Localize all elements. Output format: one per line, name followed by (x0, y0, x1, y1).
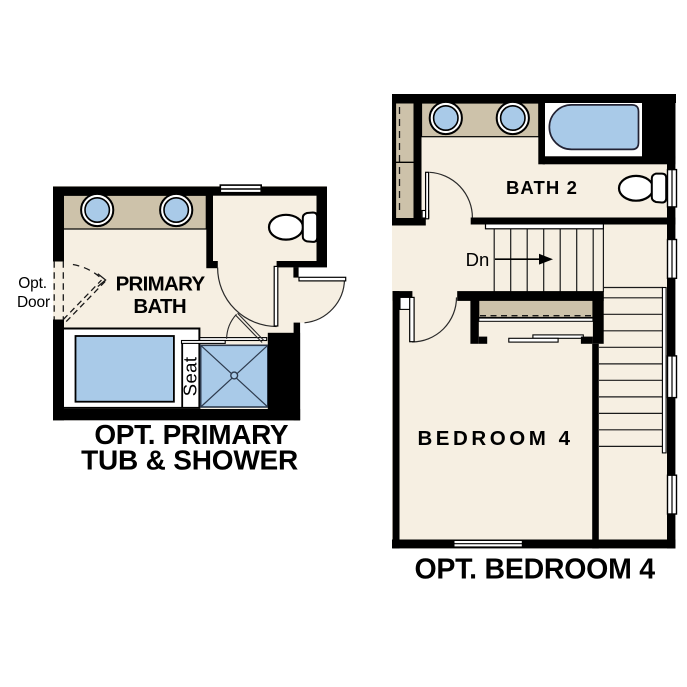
svg-text:BATH 2: BATH 2 (506, 177, 578, 198)
svg-text:Door: Door (17, 294, 50, 311)
svg-text:Seat: Seat (179, 357, 200, 397)
svg-text:TUB & SHOWER: TUB & SHOWER (81, 445, 298, 476)
svg-text:PRIMARY: PRIMARY (116, 273, 206, 296)
svg-text:BATH: BATH (133, 295, 186, 318)
svg-text:OPT. BEDROOM 4: OPT. BEDROOM 4 (415, 553, 656, 585)
svg-text:Dn: Dn (466, 249, 490, 270)
svg-text:BEDROOM 4: BEDROOM 4 (417, 427, 573, 450)
svg-text:Opt.: Opt. (18, 275, 47, 292)
